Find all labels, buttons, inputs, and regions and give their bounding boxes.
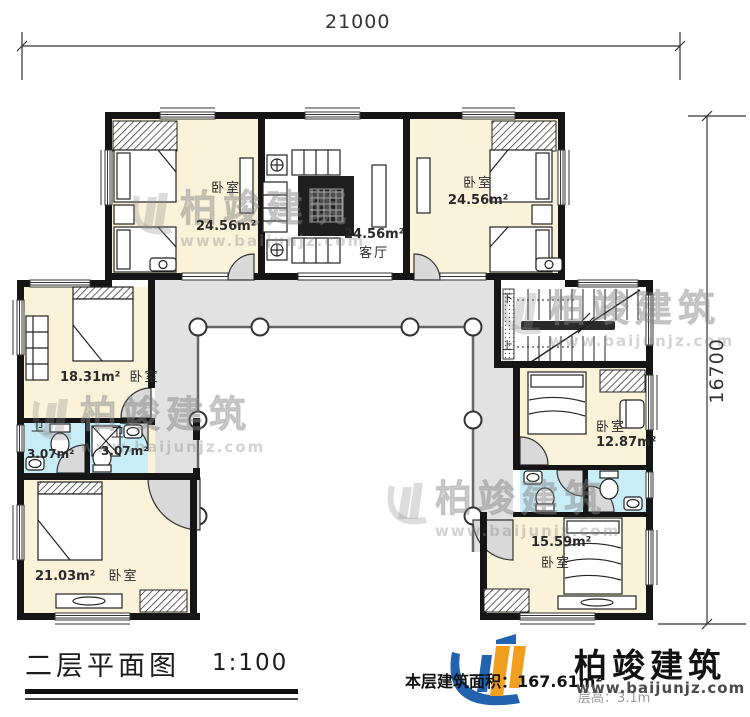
floor-area-note: 本层建筑面积：167.61m² xyxy=(405,668,602,692)
dresser-icon xyxy=(56,594,122,608)
bed-icon-mid-left xyxy=(73,287,133,361)
cabinet-icon xyxy=(417,158,430,213)
plan-scale: 1:100 xyxy=(212,650,288,676)
plan-title: 二层平面图 xyxy=(25,644,180,683)
title-underline-thin xyxy=(25,698,298,700)
sink-icon xyxy=(624,497,642,510)
room-label-bedroom-mid-left: 18.31m² 卧室 xyxy=(60,367,159,386)
room-label-living-room: 24.56m² 客厅 xyxy=(344,228,404,262)
brand-url: www.baijunjz.com xyxy=(576,679,745,697)
dimension-width-label: 21000 xyxy=(325,12,390,34)
room-label-bath-left-1: 卫 3.07m² xyxy=(31,421,74,462)
bed-icon-mid-right xyxy=(528,372,586,434)
sofa-icon xyxy=(26,316,48,380)
room-label-bath-left-2: 卫 3.07m² xyxy=(111,427,148,459)
room-label-bedroom-top-right: 卧室 24.56m² xyxy=(448,177,508,209)
dimension-height-label: 16700 xyxy=(707,338,729,403)
toilet-icon xyxy=(600,471,618,499)
toilet-icon xyxy=(536,488,554,511)
bed-icon-bottom-left xyxy=(38,482,102,560)
stairs-up-label: 上 xyxy=(502,340,513,353)
sink-icon xyxy=(524,471,542,484)
stair-handrail xyxy=(521,321,615,330)
nightstand-icon xyxy=(114,205,134,224)
bed-icon-top-left-1 xyxy=(114,150,176,202)
floor-plan-canvas: 柏竣建筑 www.baijunjz.com 柏竣建筑 www.baijunjz.… xyxy=(0,0,750,717)
room-label-bedroom-bottom-right: 15.59m² 卧室 xyxy=(531,536,591,572)
floor-plan-drawing xyxy=(0,0,750,717)
title-underline-thick xyxy=(25,689,298,694)
courtyard-void xyxy=(198,327,473,613)
room-label-bedroom-top-left: 卧室 24.56m² xyxy=(196,182,256,235)
nightstand-icon xyxy=(532,205,552,224)
dresser-icon xyxy=(558,596,636,609)
room-label-bedroom-bottom-left: 21.03m² 卧室 xyxy=(35,566,138,585)
room-label-bedroom-mid-right: 卧室 12.87m² xyxy=(596,421,656,451)
ac-unit-icon xyxy=(150,258,176,271)
ac-unit-icon xyxy=(536,258,562,271)
stairs-down-label: 下 xyxy=(502,293,513,306)
